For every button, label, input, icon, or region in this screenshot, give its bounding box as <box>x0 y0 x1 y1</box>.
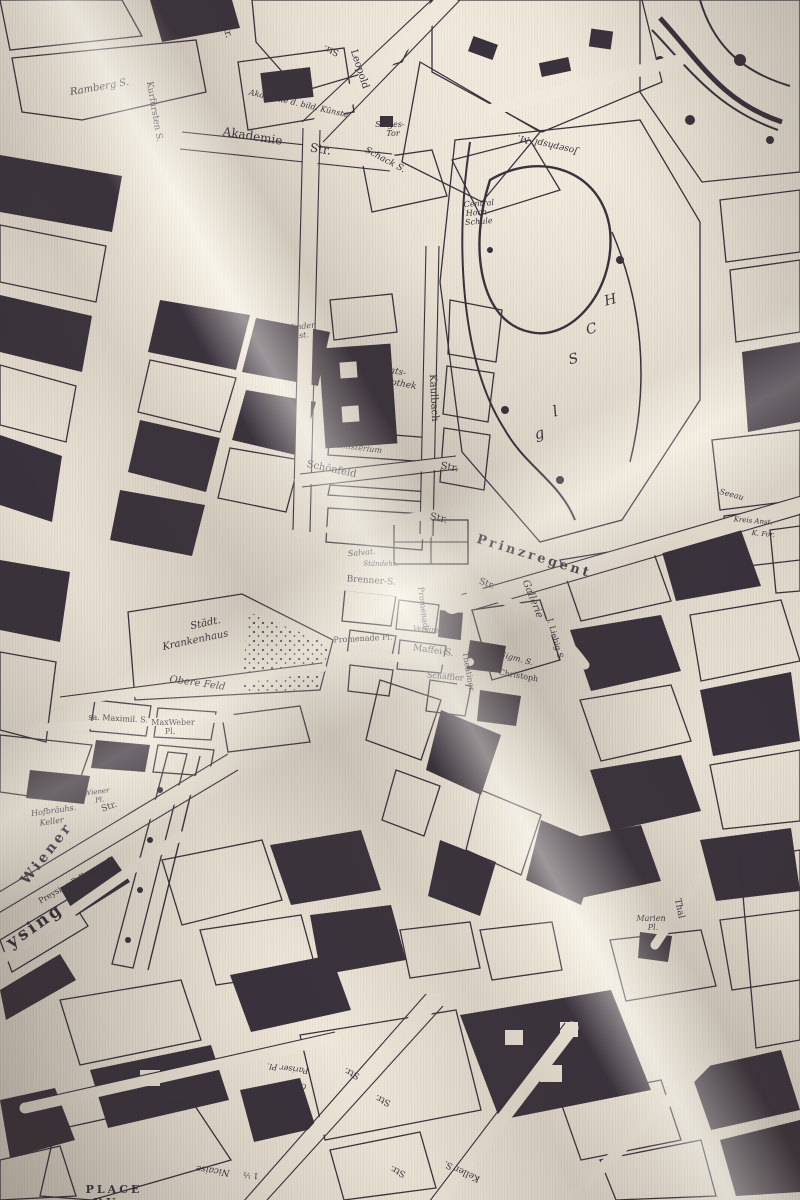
map-label: Ramberg S. <box>68 77 130 98</box>
map-label: Tor <box>386 129 401 138</box>
map-label: Pl. <box>647 923 658 932</box>
map-label: C <box>584 320 599 338</box>
map-label: S <box>567 350 581 368</box>
map-label: Josephspl. M. <box>516 132 580 156</box>
fabric-map-photo: Ramberg S.Kurfürsten S.Str.Akademie d. b… <box>0 0 800 1200</box>
map-label: Pariser Pl. <box>266 1061 310 1075</box>
map-labels: Ramberg S.Kurfürsten S.Str.Akademie d. b… <box>2 19 783 1200</box>
map-label: Sieges- <box>375 120 405 129</box>
map-label: Str. <box>440 461 459 475</box>
map-label: Schule <box>465 216 493 227</box>
map-label: Sigm. S. <box>499 650 534 667</box>
blocks-right-mid <box>560 526 800 1001</box>
map-label: DU <box>93 1196 118 1200</box>
map-label: g <box>532 423 547 443</box>
map-label: Str. <box>389 1163 408 1179</box>
map-label: Promenade Pl. <box>333 632 393 644</box>
map-label: Christoph <box>498 668 539 684</box>
map-label: Krankenhaus <box>161 628 230 653</box>
map-label: PLACE <box>86 1183 143 1196</box>
map-label: Salvat. <box>348 547 377 558</box>
map-label: Grä. <box>288 1080 307 1092</box>
map-label: MaxWeber <box>151 718 195 727</box>
map-label: Str. <box>322 42 341 57</box>
map-label: l <box>551 402 561 421</box>
map-label: Str. <box>343 1065 362 1081</box>
map-print: Ramberg S.Kurfürsten S.Str.Akademie d. b… <box>0 0 800 1200</box>
map-label: H <box>602 291 620 310</box>
map-label: Pl. <box>165 727 175 736</box>
map-label: Marien <box>635 914 665 923</box>
map-label: Seeau <box>718 487 744 502</box>
english-garden-park <box>440 120 700 542</box>
map-label: 1 ½ <box>242 1170 258 1180</box>
park-woods-top-right <box>640 0 800 182</box>
map-label: K. For. <box>750 529 775 539</box>
park-lake <box>479 166 610 333</box>
map-label: Kurfürsten S. <box>144 81 164 143</box>
map-label: Str. <box>374 1092 393 1108</box>
blocks-bird-rows <box>162 830 562 985</box>
blocks-left-column <box>0 155 122 742</box>
map-label: Ständehs. <box>363 560 398 568</box>
